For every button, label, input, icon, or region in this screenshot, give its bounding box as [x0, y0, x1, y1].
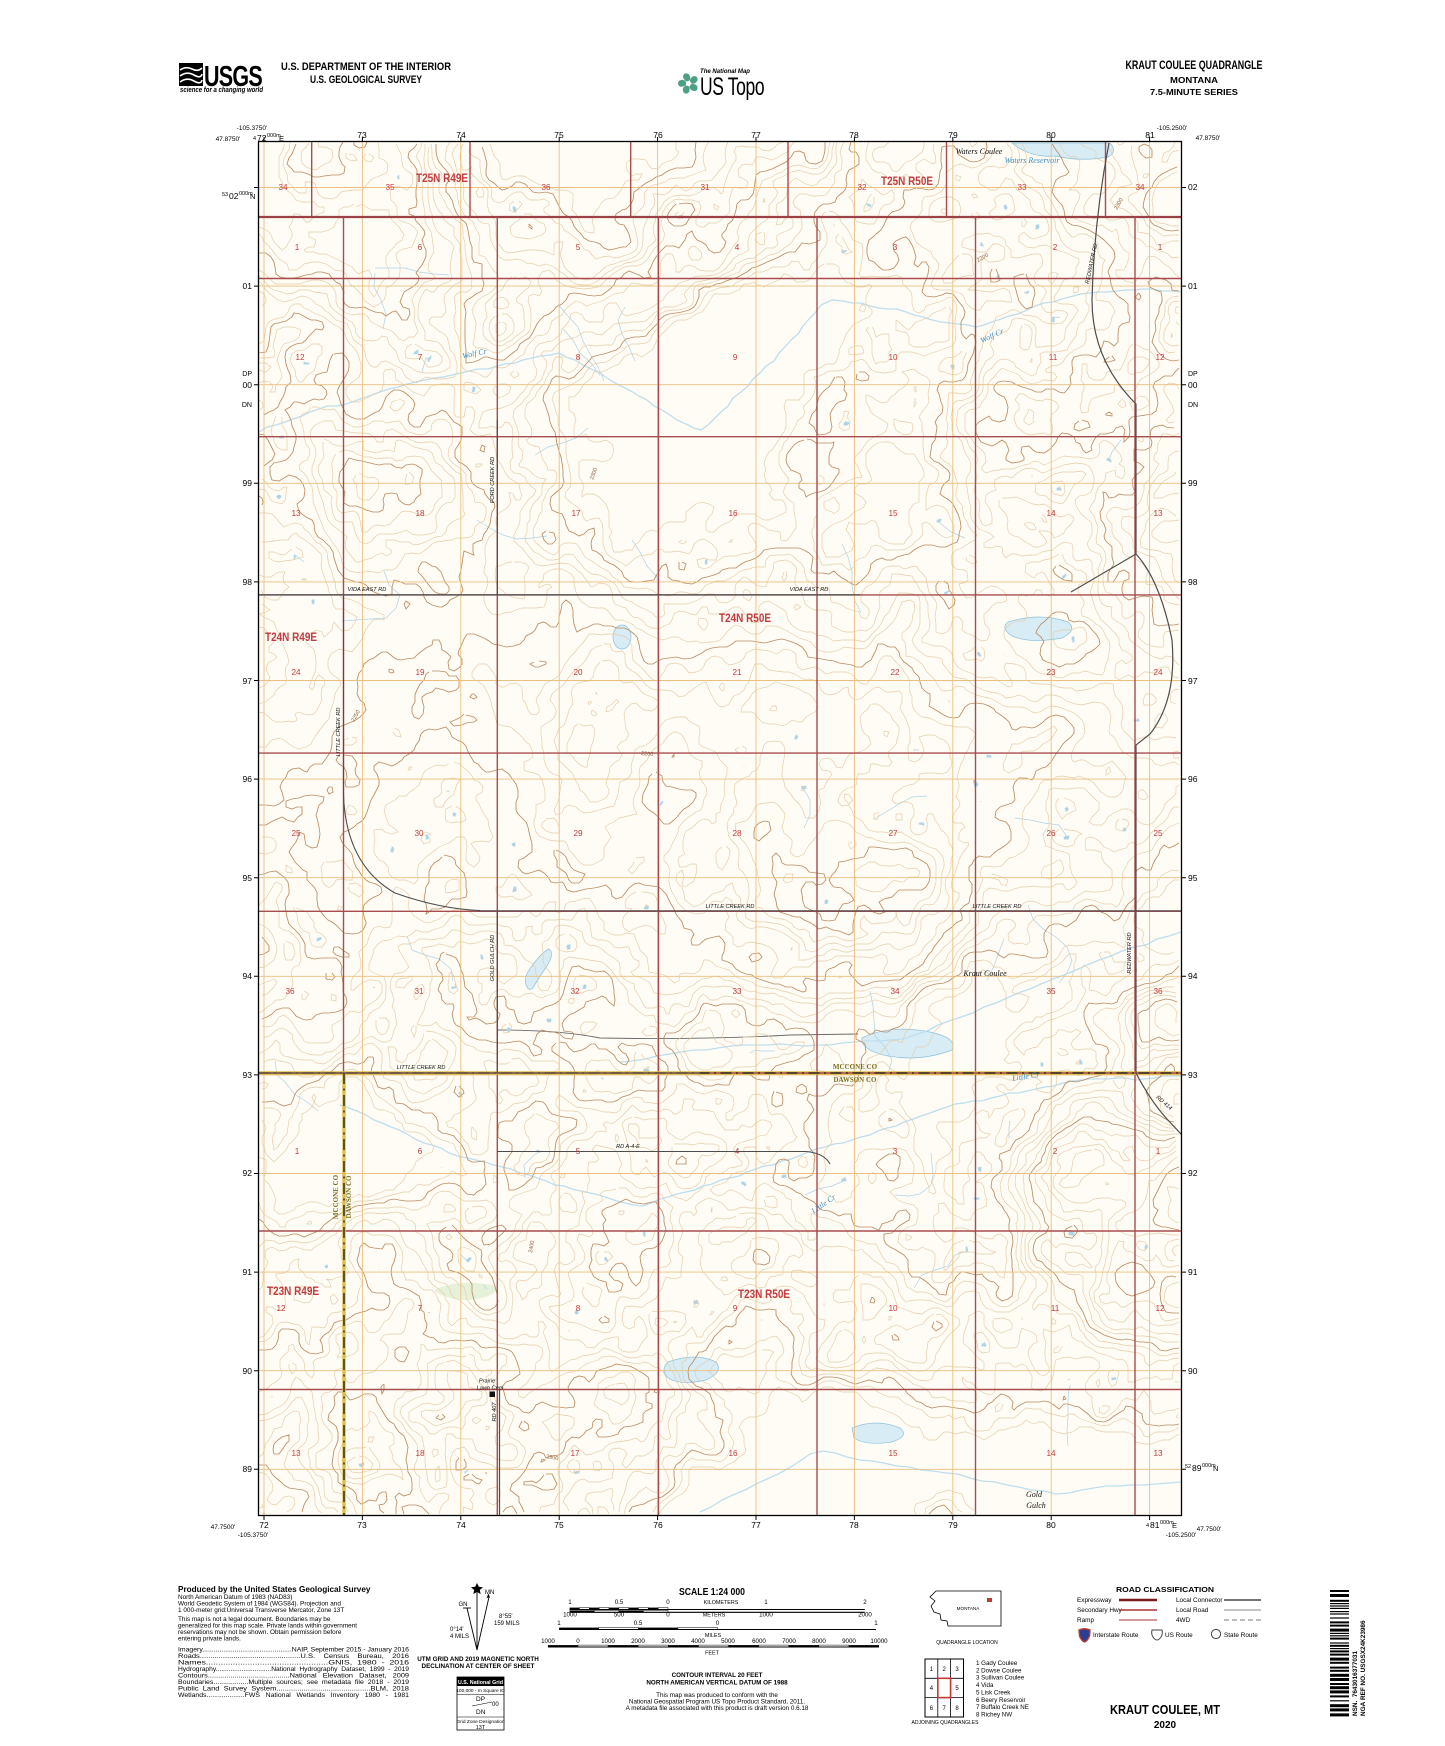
svg-text:1000: 1000 — [541, 1638, 555, 1645]
svg-text:0: 0 — [576, 1638, 580, 1645]
svg-text:31: 31 — [414, 987, 424, 996]
svg-text:1 000-meter grid:Universal Tra: 1 000-meter grid:Universal Transverse Me… — [178, 1607, 344, 1614]
svg-text:12: 12 — [295, 353, 305, 362]
svg-text:10000: 10000 — [870, 1638, 888, 1645]
svg-text:DN: DN — [242, 402, 252, 409]
svg-text:1: 1 — [764, 1599, 768, 1606]
svg-text:-105.2500': -105.2500' — [1166, 1532, 1197, 1539]
svg-text:11: 11 — [1049, 353, 1058, 362]
svg-text:DAWSON CO: DAWSON CO — [345, 1175, 353, 1219]
svg-text:4: 4 — [735, 1147, 740, 1156]
svg-text:E: E — [279, 134, 284, 143]
svg-text:77: 77 — [751, 130, 761, 140]
svg-text:4: 4 — [253, 136, 256, 142]
svg-text:92: 92 — [1188, 1168, 1198, 1178]
svg-text:-105.3750': -105.3750' — [237, 125, 268, 132]
svg-text:METERS: METERS — [703, 1613, 726, 1619]
svg-text:3: 3 — [893, 1147, 898, 1156]
svg-text:T23N R49E: T23N R49E — [267, 1284, 319, 1298]
svg-text:ADJOINING QUADRANGLES: ADJOINING QUADRANGLES — [912, 1720, 980, 1726]
svg-text:NORTH AMERICAN VERTICAL DATUM: NORTH AMERICAN VERTICAL DATUM OF 1988 — [646, 1680, 788, 1687]
svg-text:State Route: State Route — [1224, 1632, 1258, 1639]
svg-text:94: 94 — [1188, 971, 1198, 981]
svg-text:33: 33 — [732, 987, 742, 996]
svg-text:CONTOUR INTERVAL 20 FEET: CONTOUR INTERVAL 20 FEET — [672, 1672, 763, 1679]
svg-text:01: 01 — [243, 281, 253, 291]
svg-text:1: 1 — [295, 243, 300, 252]
svg-text:19: 19 — [415, 668, 425, 677]
svg-text:DECLINATION AT CENTER OF SHEET: DECLINATION AT CENTER OF SHEET — [422, 1663, 535, 1670]
svg-text:9: 9 — [733, 1304, 738, 1313]
svg-text:35: 35 — [385, 183, 395, 192]
svg-text:8 Richey NW: 8 Richey NW — [976, 1712, 1012, 1719]
svg-text:18: 18 — [415, 1449, 425, 1458]
svg-text:entering private lands.: entering private lands. — [178, 1636, 241, 1643]
svg-text:MILES: MILES — [705, 1633, 722, 1639]
svg-text:VIDA EAST RD: VIDA EAST RD — [348, 587, 387, 593]
svg-text:25: 25 — [1153, 829, 1163, 838]
svg-text:00: 00 — [492, 1702, 499, 1708]
svg-text:16: 16 — [728, 509, 738, 518]
svg-text:7000: 7000 — [782, 1638, 796, 1645]
svg-text:5000: 5000 — [721, 1638, 735, 1645]
svg-text:74: 74 — [456, 130, 466, 140]
svg-text:7.5-MINUTE SERIES: 7.5-MINUTE SERIES — [1150, 87, 1238, 97]
svg-text:13: 13 — [291, 1449, 301, 1458]
svg-text:6: 6 — [418, 1147, 423, 1156]
svg-text:Local Road: Local Road — [1176, 1607, 1209, 1614]
svg-text:95: 95 — [243, 873, 253, 883]
svg-text:23: 23 — [1046, 668, 1056, 677]
svg-text:-105.2500': -105.2500' — [1157, 125, 1188, 132]
svg-text:5: 5 — [576, 243, 581, 252]
svg-text:5 Lisk Creek: 5 Lisk Creek — [976, 1689, 1011, 1696]
svg-text:3 Sullivan Coulee: 3 Sullivan Coulee — [976, 1675, 1025, 1682]
svg-text:34: 34 — [890, 987, 900, 996]
svg-text:89: 89 — [243, 1464, 253, 1474]
svg-text:2000: 2000 — [858, 1612, 872, 1619]
svg-text:E: E — [1172, 1521, 1177, 1530]
svg-text:79: 79 — [948, 130, 958, 140]
svg-text:MN: MN — [485, 1590, 494, 1596]
svg-text:47.8750': 47.8750' — [1196, 135, 1221, 142]
svg-text:5: 5 — [576, 1147, 581, 1156]
svg-text:T24N R50E: T24N R50E — [719, 611, 771, 625]
svg-text:A metadata file associated wit: A metadata file associated with this pro… — [626, 1705, 809, 1712]
svg-text:2: 2 — [1053, 243, 1058, 252]
svg-text:21: 21 — [732, 668, 742, 677]
svg-text:12: 12 — [1155, 353, 1165, 362]
svg-text:4WD: 4WD — [1176, 1617, 1191, 1624]
svg-text:2: 2 — [863, 1599, 867, 1606]
svg-text:93: 93 — [1188, 1070, 1198, 1080]
svg-text:SCALE 1:24 000: SCALE 1:24 000 — [679, 1587, 745, 1598]
svg-text:159 MILS: 159 MILS — [494, 1621, 520, 1627]
svg-text:35: 35 — [1046, 987, 1056, 996]
svg-text:3000: 3000 — [661, 1638, 675, 1645]
svg-text:97: 97 — [1188, 676, 1198, 686]
svg-text:36: 36 — [285, 987, 295, 996]
svg-text:MONTANA: MONTANA — [1170, 76, 1218, 85]
svg-text:97: 97 — [243, 676, 253, 686]
svg-text:96: 96 — [1188, 774, 1198, 784]
svg-text:4000: 4000 — [691, 1638, 705, 1645]
svg-text:14: 14 — [1046, 1449, 1056, 1458]
svg-text:96: 96 — [243, 774, 253, 784]
svg-text:91: 91 — [243, 1267, 253, 1277]
svg-text:MONTANA: MONTANA — [957, 1606, 981, 1611]
svg-text:91: 91 — [1188, 1267, 1198, 1277]
svg-text:FORD CREEK RD: FORD CREEK RD — [490, 457, 496, 503]
svg-text:2000: 2000 — [631, 1638, 645, 1645]
svg-text:MCCONE CO: MCCONE CO — [332, 1174, 340, 1219]
svg-text:77: 77 — [751, 1520, 761, 1530]
svg-text:4: 4 — [735, 243, 740, 252]
svg-text:7: 7 — [418, 353, 423, 362]
svg-text:18: 18 — [415, 509, 425, 518]
svg-text:T24N R49E: T24N R49E — [265, 630, 317, 644]
svg-text:2 Dowse Coulee: 2 Dowse Coulee — [976, 1667, 1022, 1674]
svg-text:4 MILS: 4 MILS — [450, 1634, 469, 1640]
svg-text:Kraut Coulee: Kraut Coulee — [962, 969, 1007, 978]
svg-text:UTM GRID AND 2019 MAGNETIC NOR: UTM GRID AND 2019 MAGNETIC NORTH — [417, 1656, 539, 1663]
svg-text:1: 1 — [557, 1620, 561, 1627]
svg-text:1000: 1000 — [563, 1612, 577, 1619]
svg-text:10: 10 — [888, 353, 898, 362]
svg-text:RD A-4-E: RD A-4-E — [616, 1144, 640, 1150]
svg-text:72: 72 — [259, 1520, 269, 1530]
svg-text:KILOMETERS: KILOMETERS — [704, 1600, 739, 1606]
svg-text:VIDA EAST RD: VIDA EAST RD — [790, 587, 829, 593]
svg-text:29: 29 — [573, 829, 583, 838]
svg-text:28: 28 — [732, 829, 742, 838]
svg-text:1: 1 — [295, 1147, 300, 1156]
svg-text:90: 90 — [1188, 1366, 1198, 1376]
svg-text:Wetlands....................FW: Wetlands....................FWS National… — [178, 1692, 409, 1699]
svg-text:-105.3750': -105.3750' — [238, 1532, 269, 1539]
svg-text:Local Connector: Local Connector — [1176, 1597, 1223, 1604]
svg-text:Ramp: Ramp — [1077, 1617, 1094, 1624]
svg-text:99: 99 — [1188, 478, 1198, 488]
svg-text:8000: 8000 — [812, 1638, 826, 1645]
svg-text:8: 8 — [576, 1304, 581, 1313]
svg-text:99: 99 — [243, 478, 253, 488]
svg-text:NGA REF NO. USGSX24K23986: NGA REF NO. USGSX24K23986 — [1360, 1620, 1367, 1716]
svg-text:11: 11 — [1051, 1304, 1060, 1313]
svg-text:0°14': 0°14' — [450, 1627, 464, 1633]
svg-text:GN: GN — [459, 1602, 468, 1608]
svg-text:LITTLE CREEK RD: LITTLE CREEK RD — [706, 904, 755, 910]
svg-text:U.S. GEOLOGICAL SURVEY: U.S. GEOLOGICAL SURVEY — [310, 74, 423, 86]
svg-text:32: 32 — [570, 987, 580, 996]
svg-text:1 Gady Coulee: 1 Gady Coulee — [976, 1660, 1018, 1667]
svg-text:Lawn Cem: Lawn Cem — [477, 1386, 504, 1392]
svg-text:NSN. 7643016377031: NSN. 7643016377031 — [1352, 1651, 1359, 1716]
svg-text:36: 36 — [1153, 987, 1163, 996]
svg-text:75: 75 — [554, 1520, 564, 1530]
svg-text:Produced by the United States: Produced by the United States Geological… — [178, 1585, 371, 1594]
svg-text:80: 80 — [1046, 1520, 1056, 1530]
svg-text:0: 0 — [666, 1599, 670, 1606]
svg-text:Expressway: Expressway — [1077, 1597, 1112, 1604]
svg-text:8°55': 8°55' — [499, 1614, 513, 1620]
svg-text:7 Buffalo Creek NE: 7 Buffalo Creek NE — [976, 1704, 1029, 1711]
svg-text:13: 13 — [1153, 1449, 1163, 1458]
svg-text:N: N — [250, 192, 255, 201]
svg-text:KRAUT COULEE, MT: KRAUT COULEE, MT — [1110, 1703, 1220, 1717]
svg-text:01: 01 — [1188, 281, 1198, 291]
svg-text:4: 4 — [1146, 1523, 1149, 1529]
svg-text:2020: 2020 — [1154, 1720, 1177, 1731]
svg-text:75: 75 — [554, 130, 564, 140]
svg-text:27: 27 — [888, 829, 898, 838]
svg-text:RD 407: RD 407 — [492, 1402, 498, 1422]
svg-text:LITTLE CREEK RD: LITTLE CREEK RD — [397, 1065, 446, 1071]
svg-text:76: 76 — [653, 130, 663, 140]
svg-text:16: 16 — [728, 1449, 738, 1458]
svg-text:36: 36 — [541, 183, 551, 192]
svg-text:31: 31 — [700, 183, 710, 192]
svg-text:DN: DN — [1188, 402, 1198, 409]
svg-text:0.5: 0.5 — [615, 1599, 624, 1606]
svg-text:90: 90 — [243, 1366, 253, 1376]
svg-text:U.S. DEPARTMENT OF THE INTERIO: U.S. DEPARTMENT OF THE INTERIOR — [281, 61, 451, 73]
svg-text:0: 0 — [666, 1612, 670, 1619]
svg-text:Waters Coulee: Waters Coulee — [956, 147, 1003, 156]
svg-text:12: 12 — [1155, 1304, 1165, 1313]
svg-text:KRAUT COULEE QUADRANGLE: KRAUT COULEE QUADRANGLE — [1126, 60, 1263, 72]
svg-text:2: 2 — [1053, 1147, 1058, 1156]
svg-text:1000: 1000 — [601, 1638, 615, 1645]
svg-text:Prairie: Prairie — [479, 1379, 495, 1385]
svg-text:LITTLE CREEK RD: LITTLE CREEK RD — [973, 904, 1022, 910]
svg-text:Gulch: Gulch — [1026, 1501, 1046, 1510]
svg-text:Waters Reservoir: Waters Reservoir — [1004, 156, 1060, 165]
svg-text:1: 1 — [874, 1620, 878, 1627]
svg-text:74: 74 — [456, 1520, 466, 1530]
svg-text:93: 93 — [243, 1070, 253, 1080]
svg-text:MCCONE CO: MCCONE CO — [833, 1063, 878, 1071]
svg-text:US Topo: US Topo — [700, 72, 765, 101]
svg-text:1: 1 — [1158, 243, 1163, 252]
svg-text:80: 80 — [1046, 130, 1056, 140]
svg-text:T23N R50E: T23N R50E — [738, 1287, 790, 1301]
svg-text:9: 9 — [733, 353, 738, 362]
svg-text:32: 32 — [857, 183, 867, 192]
svg-text:76: 76 — [653, 1520, 663, 1530]
svg-text:FEET: FEET — [705, 1651, 719, 1657]
svg-text:95: 95 — [1188, 873, 1198, 883]
svg-text:QUADRANGLE LOCATION: QUADRANGLE LOCATION — [936, 1640, 998, 1646]
svg-text:GOLD GULCH RD: GOLD GULCH RD — [490, 935, 496, 982]
svg-text:78: 78 — [849, 1520, 859, 1530]
svg-text:24: 24 — [291, 668, 301, 677]
svg-text:81: 81 — [1150, 1520, 1160, 1530]
svg-text:0.5: 0.5 — [634, 1620, 643, 1627]
svg-text:26: 26 — [1046, 829, 1056, 838]
svg-text:DAWSON CO: DAWSON CO — [834, 1076, 878, 1084]
svg-text:98: 98 — [1188, 577, 1198, 587]
svg-text:00: 00 — [243, 380, 253, 390]
svg-text:100,000 - m Square ID: 100,000 - m Square ID — [456, 1688, 505, 1694]
svg-text:N: N — [1213, 1464, 1218, 1473]
svg-text:20: 20 — [573, 668, 583, 677]
svg-text:6000: 6000 — [752, 1638, 766, 1645]
svg-text:17: 17 — [570, 1449, 580, 1458]
svg-text:72: 72 — [257, 133, 267, 143]
svg-text:30: 30 — [414, 829, 424, 838]
svg-text:Interstate Route: Interstate Route — [1093, 1632, 1139, 1639]
svg-text:US Route: US Route — [1165, 1632, 1193, 1639]
svg-text:02: 02 — [229, 191, 239, 201]
svg-text:34: 34 — [278, 183, 288, 192]
svg-text:15: 15 — [888, 509, 898, 518]
svg-text:science for a changing world: science for a changing world — [180, 85, 263, 94]
svg-text:Gold: Gold — [1026, 1490, 1043, 1499]
svg-text:Secondary Hwy: Secondary Hwy — [1077, 1607, 1123, 1614]
svg-text:T25N R49E: T25N R49E — [416, 171, 468, 185]
svg-text:25: 25 — [291, 829, 301, 838]
svg-text:0: 0 — [716, 1620, 720, 1627]
svg-text:1000: 1000 — [759, 1612, 773, 1619]
svg-text:500: 500 — [614, 1612, 625, 1619]
svg-text:13T: 13T — [476, 1725, 486, 1731]
svg-text:00: 00 — [1188, 380, 1198, 390]
svg-text:22: 22 — [890, 668, 900, 677]
svg-text:47.7500': 47.7500' — [211, 1524, 236, 1531]
svg-text:79: 79 — [948, 1520, 958, 1530]
svg-text:DP: DP — [476, 1696, 485, 1703]
svg-text:LITTLE CREEK RD: LITTLE CREEK RD — [336, 708, 342, 757]
svg-text:34: 34 — [1135, 183, 1145, 192]
svg-text:94: 94 — [243, 971, 253, 981]
svg-text:14: 14 — [1046, 509, 1056, 518]
svg-text:81: 81 — [1145, 130, 1155, 140]
svg-text:47.7500': 47.7500' — [1197, 1526, 1222, 1533]
svg-text:15: 15 — [888, 1449, 898, 1458]
svg-text:7: 7 — [418, 1304, 423, 1313]
svg-text:ROAD CLASSIFICATION: ROAD CLASSIFICATION — [1116, 1585, 1214, 1594]
svg-text:47.8750': 47.8750' — [216, 136, 241, 143]
svg-text:98: 98 — [243, 577, 253, 587]
svg-text:4 Vida: 4 Vida — [976, 1682, 994, 1689]
svg-text:U.S. National Grid: U.S. National Grid — [458, 1680, 503, 1686]
svg-text:12: 12 — [276, 1304, 286, 1313]
svg-text:3: 3 — [893, 243, 898, 252]
svg-text:02: 02 — [1188, 182, 1198, 192]
svg-text:6: 6 — [418, 243, 423, 252]
svg-text:8: 8 — [576, 353, 581, 362]
svg-text:6 Beery Reservoir: 6 Beery Reservoir — [976, 1697, 1026, 1704]
svg-text:2200: 2200 — [641, 751, 654, 758]
svg-text:REDWATER RD: REDWATER RD — [1127, 932, 1133, 973]
svg-text:92: 92 — [243, 1168, 253, 1178]
svg-text:52: 52 — [1185, 1464, 1191, 1470]
svg-text:DP: DP — [242, 371, 252, 378]
svg-text:DN: DN — [476, 1709, 486, 1716]
svg-text:73: 73 — [357, 130, 367, 140]
svg-text:17: 17 — [571, 509, 581, 518]
svg-text:1: 1 — [568, 1599, 572, 1606]
svg-text:9000: 9000 — [842, 1638, 856, 1645]
svg-text:78: 78 — [849, 130, 859, 140]
svg-text:24: 24 — [1153, 668, 1163, 677]
svg-text:13: 13 — [1153, 509, 1163, 518]
svg-text:1: 1 — [1156, 1147, 1161, 1156]
svg-text:T25N R50E: T25N R50E — [881, 174, 933, 188]
svg-text:DP: DP — [1188, 371, 1198, 378]
svg-text:73: 73 — [357, 1520, 367, 1530]
svg-text:10: 10 — [888, 1304, 898, 1313]
svg-text:33: 33 — [1017, 183, 1027, 192]
svg-text:89: 89 — [1192, 1463, 1202, 1473]
svg-text:53: 53 — [222, 192, 228, 198]
svg-text:13: 13 — [291, 509, 301, 518]
